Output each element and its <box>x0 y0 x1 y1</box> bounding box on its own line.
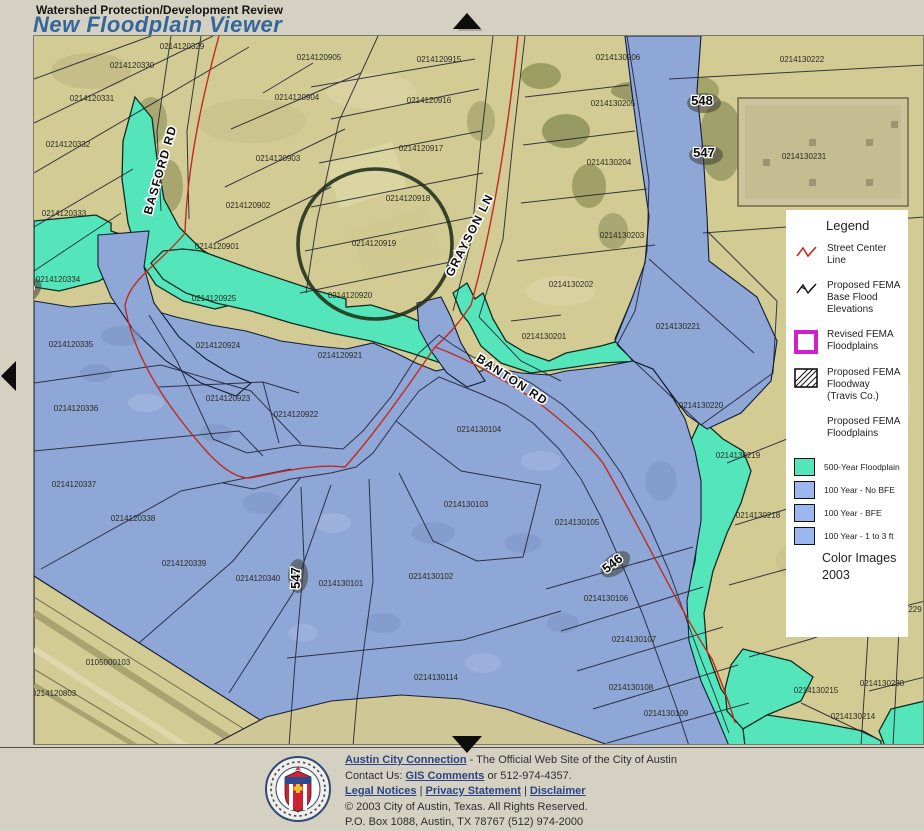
parcel-label: 0214120916 <box>407 96 452 105</box>
parcel-label: 0214120905 <box>297 53 342 62</box>
parcel-label: 0214130218 <box>736 511 781 520</box>
contact-phone: or 512-974-4357. <box>484 770 571 782</box>
legend-swatch <box>794 504 815 522</box>
parcel-label: 0214120902 <box>226 201 271 210</box>
parcel-label: 0214120919 <box>352 239 397 248</box>
parcel-label: 0214130230 <box>860 679 905 688</box>
road-shield-label: 547 <box>693 145 715 160</box>
parcel-label: 0214130108 <box>609 683 654 692</box>
parcel-label: 0214130206 <box>596 53 641 62</box>
legend-swatch <box>794 481 815 499</box>
legend-item-label: Proposed FEMABase FloodElevations <box>827 280 900 316</box>
parcel-label: 0214130106 <box>584 594 629 603</box>
parcel-label: 0214120923 <box>206 394 251 403</box>
legend-item-label: Revised FEMAFloodplains <box>827 329 894 353</box>
legend-swatches: 500-Year Floodplain100 Year - No BFE100 … <box>794 458 904 545</box>
parcel-label: 0214120340 <box>236 574 281 583</box>
parcel-label: 0214130104 <box>457 425 502 434</box>
city-of-austin-seal <box>263 754 333 824</box>
legal-notices-link[interactable]: Legal Notices <box>345 785 417 797</box>
legend-swatch <box>794 527 815 545</box>
floodplain-viewer-page: { "header": { "kicker": "Watershed Prote… <box>0 0 924 830</box>
parcel-label: 0214120917 <box>399 144 444 153</box>
parcel-label: 0214130114 <box>414 673 458 682</box>
legend-item-label: Proposed FEMAFloodplains <box>827 416 900 440</box>
parcel-label: 0214130103 <box>444 500 489 509</box>
pan-up-arrow[interactable] <box>450 11 484 33</box>
parcel-label: 0214130215 <box>794 686 839 695</box>
legend-item-label: Street CenterLine <box>827 243 886 267</box>
parcel-label: 0214120915 <box>417 55 462 64</box>
parcel-label: 0214130220 <box>679 401 724 410</box>
map-legend: Legend Street CenterLineProposed FEMABas… <box>786 210 908 637</box>
legend-item-label: Proposed FEMAFloodway(Travis Co.) <box>827 367 900 403</box>
legend-swatch-label: 100 Year - BFE <box>824 508 882 518</box>
parcel-label: 0214120903 <box>256 154 301 163</box>
legend-swatch-row: 100 Year - BFE <box>794 504 904 522</box>
parcel-label: 0214120334 <box>36 275 81 284</box>
legend-items: Street CenterLineProposed FEMABase Flood… <box>794 243 904 440</box>
pan-down-arrow[interactable] <box>449 733 485 757</box>
parcel-label: 0214130107 <box>612 635 657 644</box>
footer-line-legal: Legal Notices | Privacy Statement | Disc… <box>345 784 677 800</box>
footer-line-contact: Contact Us: GIS Comments or 512-974-4357… <box>345 769 677 785</box>
legend-swatch-label: 100 Year - 1 to 3 ft <box>824 531 893 541</box>
footer-address: P.O. Box 1088, Austin, TX 78767 (512) 97… <box>345 815 677 831</box>
site-tagline: - The Official Web Site of the City of A… <box>467 754 677 766</box>
road-shield-label: 548 <box>691 93 713 108</box>
parcel-label: 0105000103 <box>86 658 131 667</box>
parcel-label: 0214120338 <box>111 514 156 523</box>
parcel-label: 0214120336 <box>54 404 99 413</box>
parcel-label: 0214120904 <box>275 93 320 102</box>
magenta-box-icon <box>794 330 820 354</box>
parcel-label: 0214120331 <box>70 94 115 103</box>
parcel-label: 0214130204 <box>587 158 632 167</box>
parcel-label: 0214120920 <box>328 291 373 300</box>
legend-swatch-row: 100 Year - No BFE <box>794 481 904 499</box>
parcel-label: 0214120921 <box>318 351 363 360</box>
legend-swatch-row: 100 Year - 1 to 3 ft <box>794 527 904 545</box>
footer-line-site: Austin City Connection - The Official We… <box>345 753 677 769</box>
hatch-box-icon <box>794 368 820 393</box>
parcel-label: 0214120922 <box>274 410 319 419</box>
parcel-label: 0214130203 <box>600 231 645 240</box>
parcel-label: 0214120803 <box>34 689 77 698</box>
page-footer: Austin City Connection - The Official We… <box>0 747 924 831</box>
red-zigzag-icon <box>794 244 820 265</box>
pan-left-arrow[interactable] <box>0 358 20 394</box>
parcel-label: 0214130101 <box>319 579 364 588</box>
legend-item: Proposed FEMAFloodplains <box>794 416 904 440</box>
parcel-label: 0214120329 <box>160 42 205 51</box>
parcel-label: 0214120339 <box>162 559 207 568</box>
legend-item: Proposed FEMAFloodway(Travis Co.) <box>794 367 904 403</box>
parcel-label: 0214120925 <box>192 294 237 303</box>
parcel-label: 0214120901 <box>195 242 240 251</box>
legend-swatch <box>794 458 815 476</box>
parcel-label: 0214130222 <box>780 55 825 64</box>
parcel-label: 0214120918 <box>386 194 431 203</box>
legend-item: Revised FEMAFloodplains <box>794 329 904 354</box>
parcel-label: 0214130202 <box>549 280 594 289</box>
contact-prefix: Contact Us: <box>345 770 406 782</box>
parcel-label: 0214130219 <box>716 451 761 460</box>
parcel-label: 0214120333 <box>42 209 87 218</box>
parcel-label: 0214120924 <box>196 341 241 350</box>
footer-copyright: © 2003 City of Austin, Texas. All Rights… <box>345 800 677 816</box>
disclaimer-link[interactable]: Disclaimer <box>530 785 586 797</box>
privacy-statement-link[interactable]: Privacy Statement <box>426 785 521 797</box>
legend-swatch-row: 500-Year Floodplain <box>794 458 904 476</box>
parcel-label: 0214130214 <box>831 712 876 721</box>
black-zigzag-icon <box>794 281 820 302</box>
legend-item: Street CenterLine <box>794 243 904 267</box>
road-shield-label: 547 <box>288 567 303 589</box>
parcel-label: 0214130201 <box>522 332 567 341</box>
parcel-label: 0214120337 <box>52 480 97 489</box>
legend-item: Proposed FEMABase FloodElevations <box>794 280 904 316</box>
legend-note: Color Images2003 <box>822 550 904 584</box>
legend-swatch-label: 100 Year - No BFE <box>824 485 895 495</box>
parcel-label: 0214120332 <box>46 140 91 149</box>
parcel-label: 229 <box>908 605 922 614</box>
legend-title: Legend <box>826 218 904 233</box>
gis-comments-link[interactable]: GIS Comments <box>406 770 485 782</box>
parcel-label: 0214120335 <box>49 340 94 349</box>
parcel-label: 0214130105 <box>555 518 600 527</box>
parcel-label: 0214130205 <box>591 99 636 108</box>
parcel-label: 0214130109 <box>644 709 689 718</box>
legend-swatch-label: 500-Year Floodplain <box>824 462 900 472</box>
parcel-label: 0214130231 <box>782 152 827 161</box>
parcel-label: 0214120330 <box>110 61 155 70</box>
parcel-label: 0214130221 <box>656 322 701 331</box>
parcel-label: 0214130102 <box>409 572 454 581</box>
